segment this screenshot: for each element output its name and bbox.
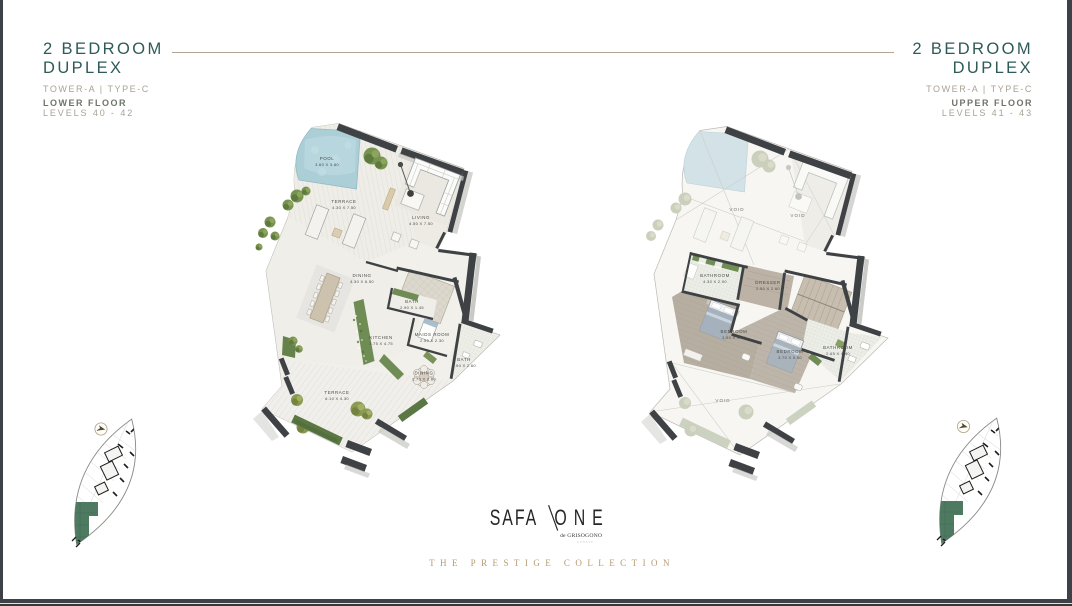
svg-text:BEDROOM: BEDROOM [777, 349, 804, 354]
svg-text:KITCHEN: KITCHEN [369, 335, 392, 340]
svg-text:3.75 X 4.75: 3.75 X 4.75 [369, 341, 393, 346]
svg-text:DINING: DINING [353, 273, 372, 278]
svg-text:BATH: BATH [457, 357, 471, 362]
svg-text:2.65 X 4.40: 2.65 X 4.40 [826, 351, 850, 356]
svg-text:4.30 X 7.50: 4.30 X 7.50 [332, 205, 356, 210]
svg-text:DINING: DINING [415, 371, 434, 376]
svg-text:MAIDS ROOM: MAIDS ROOM [415, 332, 450, 337]
svg-text:2.50 X 2.30: 2.50 X 2.30 [420, 338, 444, 343]
svg-text:1.50 X 2.60: 1.50 X 2.60 [452, 363, 476, 368]
svg-text:3.60 X 3.80: 3.60 X 3.80 [315, 162, 339, 167]
svg-text:4.30 X 6.50: 4.30 X 6.50 [350, 279, 374, 284]
svg-text:2.90 X 1.45: 2.90 X 1.45 [400, 305, 424, 310]
svg-text:3.70 X 5.00: 3.70 X 5.00 [778, 355, 802, 360]
svg-text:4.50 X 7.50: 4.50 X 7.50 [409, 221, 433, 226]
svg-text:3.90 X 3.90: 3.90 X 3.90 [722, 335, 746, 340]
svg-text:SAFA: SAFA [490, 507, 537, 531]
svg-text:TERRACE: TERRACE [331, 199, 356, 204]
svg-text:4.30 X 2.00: 4.30 X 2.00 [703, 279, 727, 284]
svg-text:LIVING: LIVING [412, 215, 430, 220]
svg-text:POOL: POOL [320, 156, 335, 161]
svg-text:BEDROOM: BEDROOM [721, 329, 748, 334]
svg-text:6.10 X 4.30: 6.10 X 4.30 [325, 396, 349, 401]
svg-text:VOID: VOID [715, 398, 730, 403]
svg-text:BATH: BATH [405, 299, 419, 304]
svg-text:DRESSER: DRESSER [755, 280, 780, 285]
svg-text:VOID: VOID [729, 207, 744, 212]
svg-text:BATHROOM: BATHROOM [700, 273, 730, 278]
svg-text:TERRACE: TERRACE [324, 390, 349, 395]
svg-text:2.70 X 3.60: 2.70 X 3.60 [412, 376, 436, 381]
svg-text:ONE: ONE [554, 507, 602, 531]
svg-text:BATHROOM: BATHROOM [823, 345, 853, 350]
svg-text:VOID: VOID [790, 213, 805, 218]
svg-text:2.50 X 2.60: 2.50 X 2.60 [756, 286, 780, 291]
